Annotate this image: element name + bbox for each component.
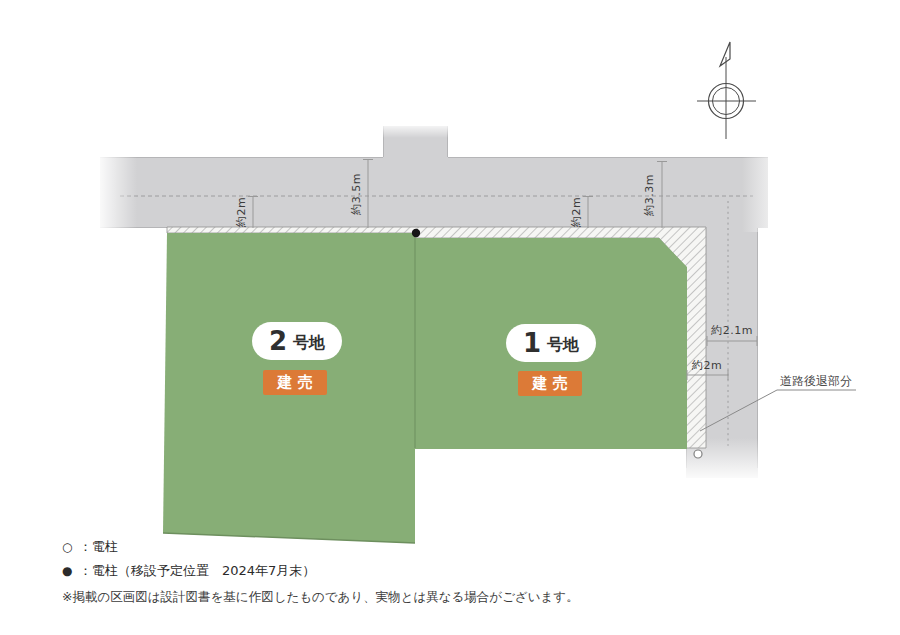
- pole-existing-icon: [694, 450, 702, 458]
- setback-annotation: 道路後退部分: [780, 373, 852, 390]
- legend-item-pole-planned: ● ：電柱（移設予定位置 2024年7月末）: [62, 562, 315, 580]
- lot-2-label: 2 号地: [252, 322, 342, 360]
- lot-1-number: 1: [523, 330, 541, 356]
- legend-item-pole-existing: ○ ：電柱: [62, 538, 118, 556]
- lot-2-number: 2: [269, 328, 287, 354]
- dim-label-side-width: 約2.1m: [711, 323, 753, 338]
- lot-1-sale-badge: 建売: [518, 371, 582, 396]
- lot-1-suffix: 号地: [547, 333, 579, 353]
- site-plan: 約2m 約3.5m 約2m 約3.3m 約2.1m 約2m 道路後退部分 2 号…: [0, 0, 900, 635]
- lot-1-label: 1 号地: [506, 324, 596, 362]
- pole-existing-legend-icon: ○: [62, 540, 79, 554]
- dim-label-top-setback-right: 約2m: [569, 197, 584, 227]
- north-arrow-icon: [697, 42, 756, 139]
- legend-item-text: ：電柱: [79, 538, 118, 556]
- dim-label-top-width-right: 約3.3m: [642, 174, 657, 216]
- pole-planned-icon: [412, 229, 420, 237]
- dim-label-top-setback-left: 約2m: [234, 197, 249, 227]
- dim-label-side-setback: 約2m: [692, 358, 722, 373]
- lot-2-suffix: 号地: [293, 331, 325, 351]
- site-plan-drawing: [0, 0, 900, 635]
- lot-2-sale-badge: 建売: [263, 370, 327, 395]
- disclaimer-note: ※掲載の区画図は設計図書を基に作図したものであり、実物とは異なる場合がございます…: [62, 589, 579, 606]
- legend-item-text: ：電柱（移設予定位置 2024年7月末）: [79, 562, 315, 580]
- dim-label-top-width-left: 約3.5m: [349, 173, 364, 215]
- pole-planned-legend-icon: ●: [62, 564, 79, 578]
